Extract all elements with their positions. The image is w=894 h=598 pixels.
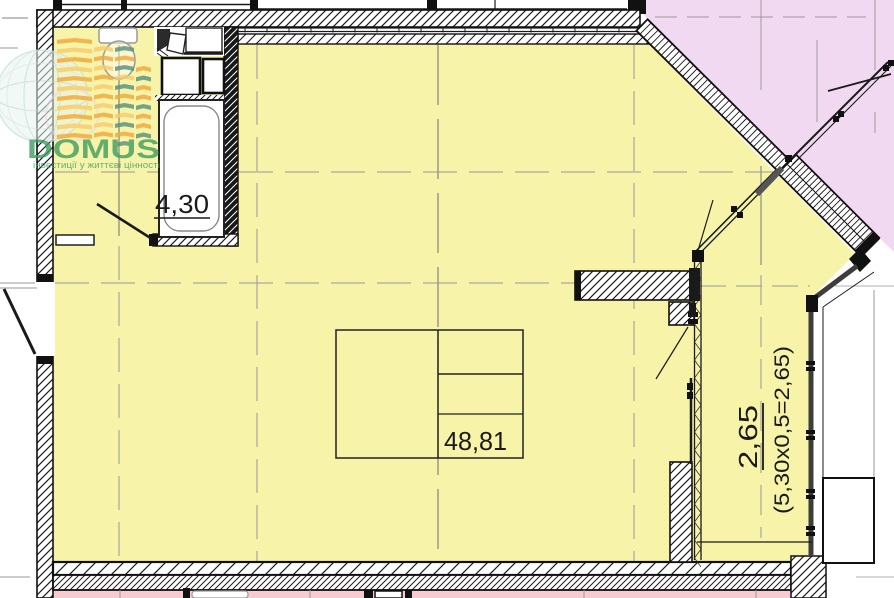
svg-text:2,65: 2,65	[733, 405, 763, 469]
svg-text:інвестиції у життєві цінності: інвестиції у життєві цінності	[33, 160, 160, 170]
svg-text:48,81: 48,81	[444, 426, 507, 456]
svg-text:4,30: 4,30	[155, 189, 209, 219]
svg-text:(5,30х0,5=2,65): (5,30х0,5=2,65)	[771, 346, 794, 514]
